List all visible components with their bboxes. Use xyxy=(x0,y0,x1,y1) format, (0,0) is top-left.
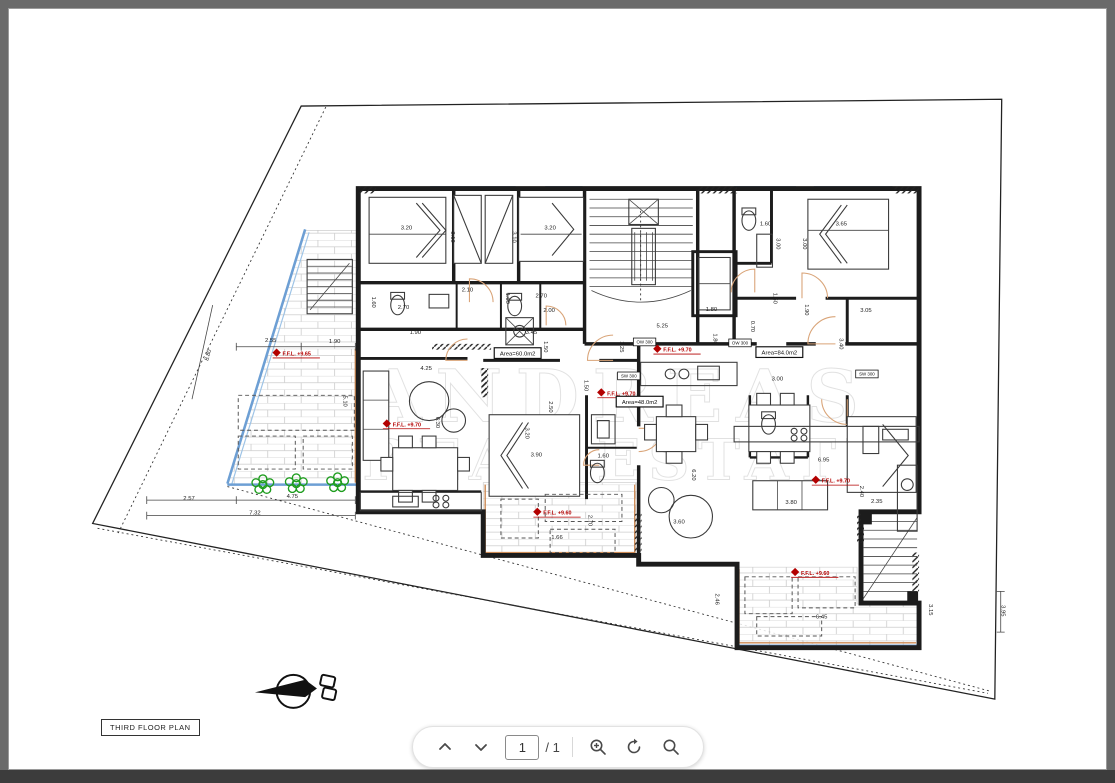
svg-text:6.20: 6.20 xyxy=(690,469,696,481)
svg-text:3.95: 3.95 xyxy=(1000,605,1006,617)
svg-text:F.F.L. +9.65: F.F.L. +9.65 xyxy=(283,352,311,358)
svg-text:3.45: 3.45 xyxy=(526,330,538,336)
svg-text:3.00: 3.00 xyxy=(772,377,784,383)
svg-text:6.30: 6.30 xyxy=(434,417,440,429)
zoom-in-icon xyxy=(589,738,607,756)
svg-text:F.F.L. +9.60: F.F.L. +9.60 xyxy=(543,511,571,517)
floor-plan-drawing: ANDREAS REAL ESTATE xyxy=(9,9,1106,769)
svg-text:0.70: 0.70 xyxy=(749,321,755,333)
north-arrow-icon xyxy=(255,675,337,708)
svg-text:1.60: 1.60 xyxy=(370,296,376,308)
svg-text:4.75: 4.75 xyxy=(287,494,299,500)
svg-text:2.10: 2.10 xyxy=(462,287,474,293)
chevron-down-icon xyxy=(473,739,489,755)
svg-text:3.20: 3.20 xyxy=(524,427,530,439)
rotate-icon xyxy=(625,738,643,756)
svg-text:2.55: 2.55 xyxy=(265,338,277,344)
svg-text:1.25: 1.25 xyxy=(618,341,624,353)
svg-text:1.80: 1.80 xyxy=(711,333,717,345)
svg-text:1.60: 1.60 xyxy=(760,221,772,227)
pdf-toolbar: / 1 xyxy=(412,726,704,768)
svg-text:6.95: 6.95 xyxy=(818,457,830,463)
svg-text:Area=48.0m2: Area=48.0m2 xyxy=(622,400,658,406)
stairs-bottom-right xyxy=(861,514,918,602)
svg-text:2.40: 2.40 xyxy=(858,486,864,498)
rotate-button[interactable] xyxy=(622,735,646,759)
page-total-label: / 1 xyxy=(545,740,559,755)
svg-text:3.20: 3.20 xyxy=(401,225,413,231)
svg-text:1.50: 1.50 xyxy=(583,380,589,392)
svg-text:1.90: 1.90 xyxy=(803,304,809,316)
svg-text:2.70: 2.70 xyxy=(398,305,410,311)
stair-core xyxy=(589,199,736,315)
svg-text:F.F.L. +9.70: F.F.L. +9.70 xyxy=(663,348,691,354)
drawing-title-box: THIRD FLOOR PLAN xyxy=(101,719,200,736)
svg-text:1.50: 1.50 xyxy=(771,293,777,305)
svg-text:3.00: 3.00 xyxy=(801,238,807,250)
svg-text:OW 300: OW 300 xyxy=(732,340,749,345)
svg-text:Area=84.0m2: Area=84.0m2 xyxy=(762,351,798,357)
svg-text:2.35: 2.35 xyxy=(871,499,883,505)
svg-text:F.F.L. +9.60: F.F.L. +9.60 xyxy=(801,571,829,577)
svg-text:7.32: 7.32 xyxy=(249,511,260,517)
svg-text:3.60: 3.60 xyxy=(673,519,685,525)
svg-text:2.70: 2.70 xyxy=(586,515,592,527)
drawing-title: THIRD FLOOR PLAN xyxy=(110,723,191,732)
svg-text:1.60: 1.60 xyxy=(504,293,510,305)
svg-text:SW 300: SW 300 xyxy=(859,371,875,376)
svg-text:2.50: 2.50 xyxy=(547,401,553,413)
pdf-page: ANDREAS REAL ESTATE xyxy=(8,8,1107,770)
svg-text:2.57: 2.57 xyxy=(183,496,194,502)
svg-text:3.80: 3.80 xyxy=(785,500,797,506)
svg-text:8.80: 8.80 xyxy=(204,348,213,361)
svg-text:1.60: 1.60 xyxy=(598,453,610,459)
zoom-in-button[interactable] xyxy=(586,735,610,759)
viewer-bottom-frame xyxy=(0,770,1115,783)
svg-text:2.46: 2.46 xyxy=(713,593,719,604)
svg-text:F.F.L. +9.70: F.F.L. +9.70 xyxy=(822,479,850,485)
svg-text:2.00: 2.00 xyxy=(543,308,555,314)
svg-text:5.25: 5.25 xyxy=(657,323,669,329)
svg-text:1.80: 1.80 xyxy=(706,307,718,313)
svg-text:1.90: 1.90 xyxy=(329,339,341,345)
search-icon xyxy=(662,738,680,756)
svg-text:F.F.L. +9.70: F.F.L. +9.70 xyxy=(393,422,421,428)
svg-text:2.70: 2.70 xyxy=(536,293,548,299)
previous-page-button[interactable] xyxy=(433,735,457,759)
chevron-up-icon xyxy=(437,739,453,755)
svg-text:3.00: 3.00 xyxy=(774,238,780,250)
svg-text:1.50: 1.50 xyxy=(542,341,548,353)
svg-text:3.20: 3.20 xyxy=(544,225,556,231)
svg-text:3.65: 3.65 xyxy=(836,221,848,227)
svg-text:OW 300: OW 300 xyxy=(636,339,653,344)
svg-text:1.66: 1.66 xyxy=(551,535,562,541)
svg-text:3.40: 3.40 xyxy=(837,338,843,350)
plants xyxy=(252,473,348,493)
svg-text:SW 300: SW 300 xyxy=(621,373,637,378)
svg-text:3.90: 3.90 xyxy=(531,452,543,458)
svg-text:3.05: 3.05 xyxy=(860,308,872,314)
svg-text:3.15: 3.15 xyxy=(927,604,933,616)
svg-text:3.10: 3.10 xyxy=(511,231,517,243)
toolbar-divider xyxy=(572,737,573,757)
svg-text:Area=60.0m2: Area=60.0m2 xyxy=(500,352,536,358)
svg-text:1.90: 1.90 xyxy=(410,330,422,336)
svg-text:6.45: 6.45 xyxy=(816,615,828,621)
svg-text:4.25: 4.25 xyxy=(420,366,432,372)
svg-text:5.10: 5.10 xyxy=(341,395,347,407)
svg-text:3.10: 3.10 xyxy=(449,231,455,243)
search-button[interactable] xyxy=(659,735,683,759)
page-number-input[interactable] xyxy=(505,735,539,760)
next-page-button[interactable] xyxy=(469,735,493,759)
